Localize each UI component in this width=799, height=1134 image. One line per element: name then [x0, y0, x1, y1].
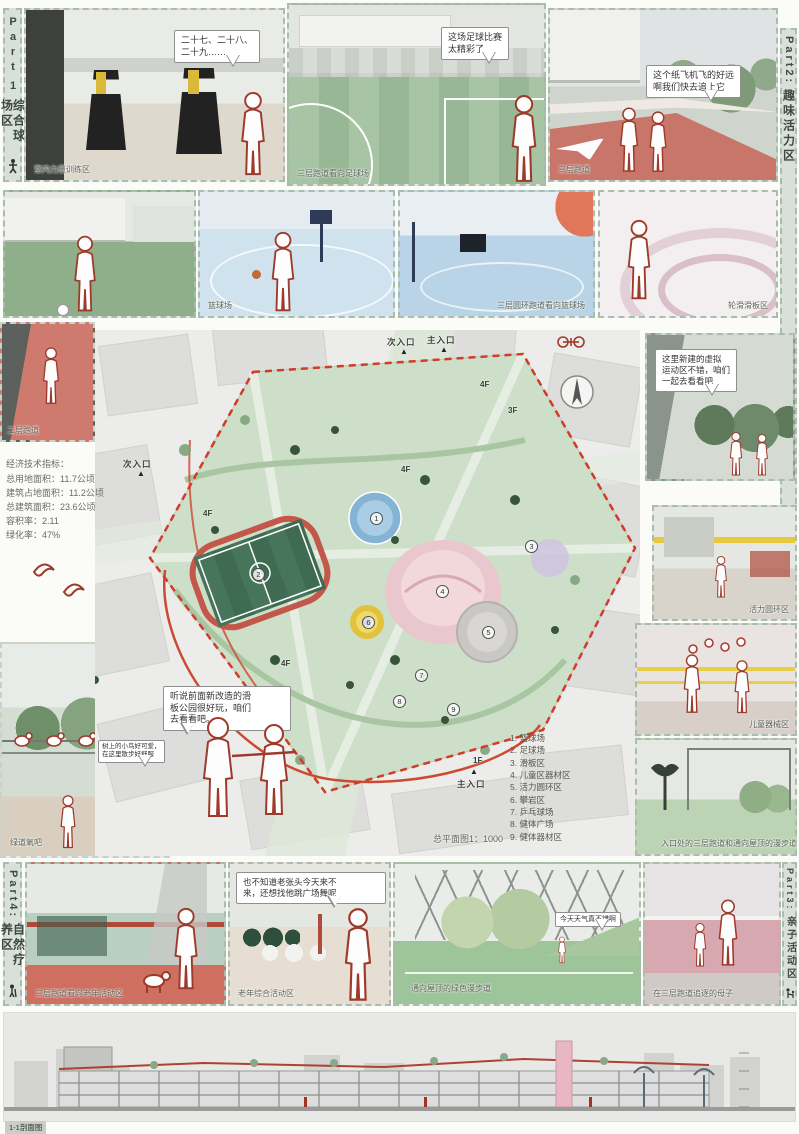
legend-item: 9. 健体器材区 — [510, 831, 570, 843]
part4-zh: 自然疗养区 — [1, 923, 25, 980]
person-outline-figure — [231, 90, 275, 178]
ramp-caption: 三层跑道 — [558, 164, 590, 175]
person-outline-figure — [612, 106, 646, 174]
vitality-ring-caption: 活力圆环区 — [749, 604, 789, 615]
person-outline-figure — [618, 218, 660, 302]
legend-item: 8. 健体广场 — [510, 818, 570, 830]
walking-elders-figures — [192, 716, 312, 820]
part1-zh: 综合球场区 — [1, 99, 25, 154]
backboard-graphic — [310, 210, 332, 224]
plan-number-3: 3 — [525, 540, 538, 553]
gym-machine-graphic-2 — [176, 68, 222, 154]
gym-room-image: 二十七、二十八、 二十九…… 室内力量训练区 — [24, 8, 285, 182]
virtual-speech-bubble: 这里新建的虚拟 运动区不错，咱们 一起去看看吧 — [655, 349, 737, 392]
birds-speech-bubble: 树上的小鸟好可爱， 在这里散步好舒服 — [98, 740, 165, 763]
runner-caption: 二层跑道 — [7, 425, 39, 436]
yellow-bar-graphic — [637, 667, 797, 671]
runner-track-image: 二层跑道 — [0, 322, 95, 442]
part4-label-strip: Part4: 自然疗养区 — [3, 862, 22, 1006]
ramp-speech-bubble: 这个纸飞机飞的好远 啊我们快去追上它 — [646, 65, 741, 98]
legend-item: 4. 儿童区器材区 — [510, 769, 570, 781]
floor-label: 4F — [281, 659, 290, 668]
greenway-caption: 绿道氧吧 — [10, 837, 42, 848]
kids-equipment-image: 儿童器械区 — [635, 623, 797, 736]
football-caption: 三层跑道看向足球场 — [297, 168, 369, 179]
red-pole-graphic — [318, 914, 322, 954]
plan-number-5: 5 — [482, 626, 495, 639]
entry-track-caption: 入口处的三层跑道和通向屋顶的漫步道 — [661, 838, 797, 849]
red-canopy-graphic — [550, 190, 595, 242]
part1-label-strip: Part 1 综合球场区 — [3, 8, 22, 182]
legend-item: 5. 活力圆环区 — [510, 781, 570, 793]
screen-graphic — [460, 234, 486, 252]
plan-number-6: 6 — [362, 616, 375, 629]
basketball-court-image: 篮球场 — [198, 190, 395, 318]
building-graphic-2 — [133, 206, 196, 242]
gym-machine-accent — [96, 72, 106, 94]
basketball-caption: 篮球场 — [208, 300, 232, 311]
floor-label: 4F — [203, 509, 212, 518]
roller-skate-image: 轮滑滑板区 — [598, 190, 778, 318]
gym-speech-bubble: 二十七、二十八、 二十九…… — [174, 30, 260, 63]
person-outline-figure — [711, 898, 745, 968]
gym-caption: 室内力量训练区 — [34, 164, 90, 175]
entrance-marker: ▲ — [470, 767, 478, 776]
football-field-image: 这场足球比赛 太精彩了 三层跑道看向足球场 — [287, 3, 546, 186]
basketball-graphic — [252, 270, 261, 279]
mother-child-image: 在三层跑道追逐的母子 — [643, 862, 781, 1006]
elderly-icon — [7, 984, 19, 998]
person-outline-figure — [334, 906, 382, 1004]
ring-track-caption: 三层圆环跑道看向篮球场 — [497, 300, 585, 311]
legend-item: 1. 篮球场 — [510, 732, 570, 744]
person-outline-figure — [65, 234, 105, 314]
indicator-line: 总建筑面积：23.6公顷 — [6, 501, 136, 515]
section-graphic — [4, 1013, 795, 1121]
football-speech-bubble: 这场足球比赛 太精彩了 — [441, 27, 509, 60]
entrance-marker: ▲ — [137, 469, 145, 478]
lawn-line-graphic — [405, 972, 633, 974]
plan-number-2: 2 — [252, 568, 265, 581]
tulip-canopy-icon — [645, 754, 685, 815]
flying-birds-icon — [28, 552, 108, 613]
trees-graphic — [733, 780, 789, 814]
plan-number-9: 9 — [447, 703, 460, 716]
person-outline-figure — [262, 230, 304, 314]
kids-equipment-caption: 儿童器械区 — [749, 719, 789, 730]
plan-caption: 总平面图1：1000 — [433, 832, 503, 845]
indicator-line: 容积率：2.11 — [6, 515, 136, 529]
mother-child-caption: 在三层跑道追逐的母子 — [653, 988, 733, 999]
presentation-board: Part 1 综合球场区 二十七、二十八、 二十九…… 室内力量训练区 这场足球… — [0, 0, 799, 1132]
entrance-label-main-bottom: 主入口 — [457, 778, 486, 790]
part1-num: 1 — [7, 80, 18, 95]
senior-plaza-image: 也不知道老张头今天来不 来，还想找他跳广场舞呢 老年综合活动区 — [228, 862, 391, 1006]
person-outline-figure — [729, 659, 755, 715]
building-graphic — [550, 10, 640, 83]
floor-label: 3F — [508, 406, 517, 415]
floor-label: 4F — [480, 380, 489, 389]
roof-walk-image: 今天天气真不错啊 通向屋顶的绿色漫步道 — [393, 862, 641, 1006]
part4-en: Part4: — [7, 870, 18, 919]
person-outline-figure — [36, 346, 66, 406]
dog-figure — [139, 968, 173, 999]
ring-track-court-image: 三层圆环跑道看向篮球场 — [398, 190, 595, 318]
soccer-player-image — [3, 190, 196, 318]
building-graphic — [664, 517, 714, 557]
plan-legend: 1. 篮球场 2. 足球场 3. 滑板区 4. 儿童区器材区 5. 活力圆环区 … — [510, 732, 570, 843]
entry-track-image: 入口处的三层跑道和通向屋顶的漫步道 — [635, 738, 797, 856]
section-drawing — [3, 1012, 796, 1122]
technical-indicators: 经济技术指标： 总用地面积：11.7公顷 建筑占地面积：11.2公顷 总建筑面积… — [6, 458, 136, 543]
canopy-graphic — [299, 15, 451, 47]
master-plan: 次入口 ▲ 主入口 ▲ 次入口 ▲ 主入口 ▲ 4F 3F 4F 4F 4F 2… — [95, 330, 640, 856]
person-outline-figure — [677, 653, 707, 715]
section-caption: 1-1剖面图 — [5, 1121, 46, 1134]
part1-en: Part — [7, 16, 18, 76]
soccer-ball-graphic — [57, 304, 69, 316]
entrance-marker: ▲ — [400, 347, 408, 356]
person-outline-figure — [710, 555, 732, 599]
hoop-pole-graphic — [412, 222, 415, 282]
indicator-line: 建筑占地面积：11.2公顷 — [6, 487, 136, 501]
parent-child-icon — [785, 988, 795, 1000]
legend-item: 2. 足球场 — [510, 744, 570, 756]
legend-item: 7. 乒乓球场 — [510, 806, 570, 818]
red-structure-graphic — [750, 551, 790, 577]
part3-label-strip: Part3: 亲子活动区 — [782, 862, 797, 1006]
plan-number-1: 1 — [370, 512, 383, 525]
court-graphic — [37, 916, 107, 956]
part3-zh: 亲子活动区 — [785, 916, 795, 981]
ramp-run-image: 这个纸飞机飞的好远 啊我们快去追上它 三层跑道 — [548, 8, 778, 182]
indicator-line: 绿化率：47% — [6, 529, 136, 543]
plaza-speech-bubble: 也不知道老张头今天来不 来，还想找他跳广场舞呢 — [236, 872, 386, 904]
vitality-ring-image: 活力圆环区 — [652, 505, 797, 621]
trees-graphic — [435, 886, 565, 952]
gym-machine-graphic — [86, 70, 126, 150]
person-outline-figure — [751, 433, 773, 477]
plan-number-7: 7 — [415, 669, 428, 682]
virtual-sports-image: 这里新建的虚拟 运动区不错，咱们 一起去看看吧 — [645, 333, 795, 481]
elderly-walk-caption: 三层跑道看向老年活动区 — [35, 988, 123, 999]
legend-item: 3. 滑板区 — [510, 757, 570, 769]
person-outline-figure — [725, 431, 747, 477]
roof-walk-caption: 通向屋顶的绿色漫步道 — [411, 983, 491, 994]
yellow-bar-graphic-2 — [637, 681, 797, 684]
floor-label: 1F — [473, 756, 482, 765]
gym-wall-graphic — [26, 10, 64, 180]
person-outline-figure — [54, 794, 82, 850]
part3-en: Part3: — [785, 868, 794, 912]
roller-caption: 轮滑滑板区 — [728, 300, 768, 311]
indicators-title: 经济技术指标： — [6, 458, 136, 472]
exercise-icon — [7, 158, 19, 174]
child-outline-figure — [689, 922, 711, 968]
part2-en: Part2: — [783, 36, 794, 85]
person-outline-figure — [642, 110, 674, 174]
plan-number-8: 8 — [393, 695, 406, 708]
person-outline-figure — [555, 936, 569, 964]
weather-speech-bubble: 今天天气真不错啊 — [555, 912, 621, 927]
indicator-line: 总用地面积：11.7公顷 — [6, 473, 136, 487]
entrance-marker: ▲ — [440, 345, 448, 354]
part2-zh: 趣味活力区 — [783, 89, 795, 164]
floor-label: 4F — [401, 465, 410, 474]
plan-number-4: 4 — [436, 585, 449, 598]
legend-item: 6. 攀岩区 — [510, 794, 570, 806]
plaza-caption: 老年综合活动区 — [238, 988, 294, 999]
elderly-walk-image: 三层跑道看向老年活动区 — [25, 862, 226, 1006]
sculpture-graphic — [254, 944, 334, 962]
person-outline-figure — [501, 93, 546, 185]
gym-machine-accent-2 — [188, 70, 199, 94]
